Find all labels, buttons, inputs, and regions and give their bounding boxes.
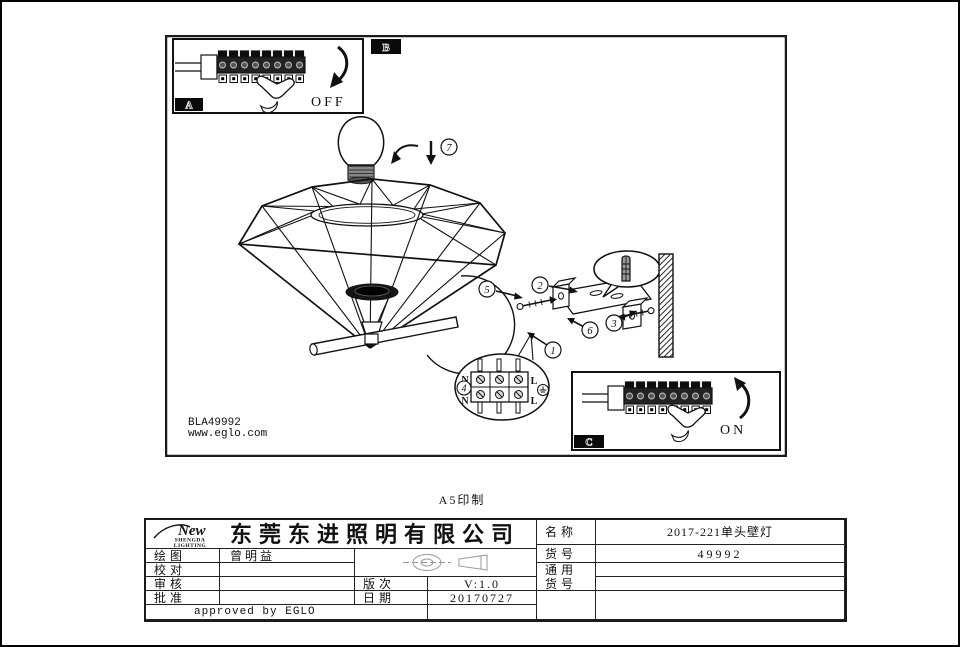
version-value: V:1.0	[428, 577, 537, 591]
svg-text:6: 6	[587, 326, 593, 337]
bottom-right-value-empty	[596, 591, 845, 620]
field-check-value	[220, 563, 355, 577]
company-header: New SHENGDA LIGHTING 东莞东进照明有限公司	[146, 520, 537, 549]
approved-note: approved by EGLO	[146, 605, 428, 620]
svg-text:7: 7	[446, 143, 452, 154]
print-note: A5印制	[402, 491, 522, 508]
field-approve-value	[220, 591, 355, 605]
on-inset: ON C	[572, 372, 780, 450]
generic-sku-value-2	[596, 577, 845, 591]
field-review-label: 审核	[146, 577, 220, 591]
svg-text:B: B	[382, 42, 390, 54]
shengda-logo: New SHENGDA LIGHTING	[150, 520, 230, 548]
drawing-frame: OFF A B	[165, 35, 787, 457]
sku-value: 49992	[596, 545, 845, 563]
part-marker-4: 4	[457, 381, 471, 395]
date-label: 日期	[355, 591, 428, 605]
wall-anchor-icon	[622, 256, 630, 281]
name-value: 2017-221单头壁灯	[596, 520, 845, 545]
on-label: ON	[720, 423, 746, 438]
field-approve-label: 批准	[146, 591, 220, 605]
logo-caption-2: LIGHTING	[174, 543, 207, 548]
field-draw-value: 曾明益	[220, 549, 355, 563]
svg-text:1: 1	[550, 346, 555, 357]
part-marker-7: 7	[441, 139, 457, 155]
svg-text:C: C	[585, 438, 592, 449]
title-block: New SHENGDA LIGHTING 东莞东进照明有限公司 绘图 曾明益 校…	[144, 518, 847, 622]
company-name: 东莞东进照明有限公司	[230, 520, 520, 549]
website-link: www.eglo.com	[188, 428, 268, 440]
generic-sku-value-1	[596, 563, 845, 577]
bottom-mid-empty-cell	[428, 605, 537, 620]
date-value: 20170727	[428, 591, 537, 605]
wall-surface	[659, 254, 673, 357]
instruction-sheet: OFF A B	[0, 0, 960, 647]
svg-text:2: 2	[537, 281, 543, 292]
bottom-right-label-empty	[537, 591, 596, 620]
field-review-value	[220, 577, 355, 591]
sku-label: 货号	[537, 545, 596, 563]
version-label: 版次	[355, 577, 428, 591]
svg-text:4: 4	[462, 384, 467, 395]
field-check-label: 校对	[146, 563, 220, 577]
section-label-a: A	[175, 98, 203, 112]
svg-text:5: 5	[484, 285, 489, 296]
section-label-c: C	[574, 435, 604, 449]
neutral-label-bottom: N	[461, 396, 469, 407]
svg-text:3: 3	[610, 319, 616, 330]
live-label-top: L	[531, 376, 538, 387]
generic-sku-label: 通用 货号	[537, 563, 596, 591]
section-label-b: B	[371, 39, 401, 54]
field-draw-label: 绘图	[146, 549, 220, 563]
off-label: OFF	[311, 95, 346, 110]
name-label: 名称	[537, 520, 596, 545]
projection-symbol-cell	[355, 549, 537, 577]
svg-text:A: A	[185, 101, 193, 112]
off-inset: OFF A	[173, 39, 363, 115]
live-label-bottom: L	[531, 396, 538, 407]
projection-symbol-icon	[355, 549, 535, 576]
